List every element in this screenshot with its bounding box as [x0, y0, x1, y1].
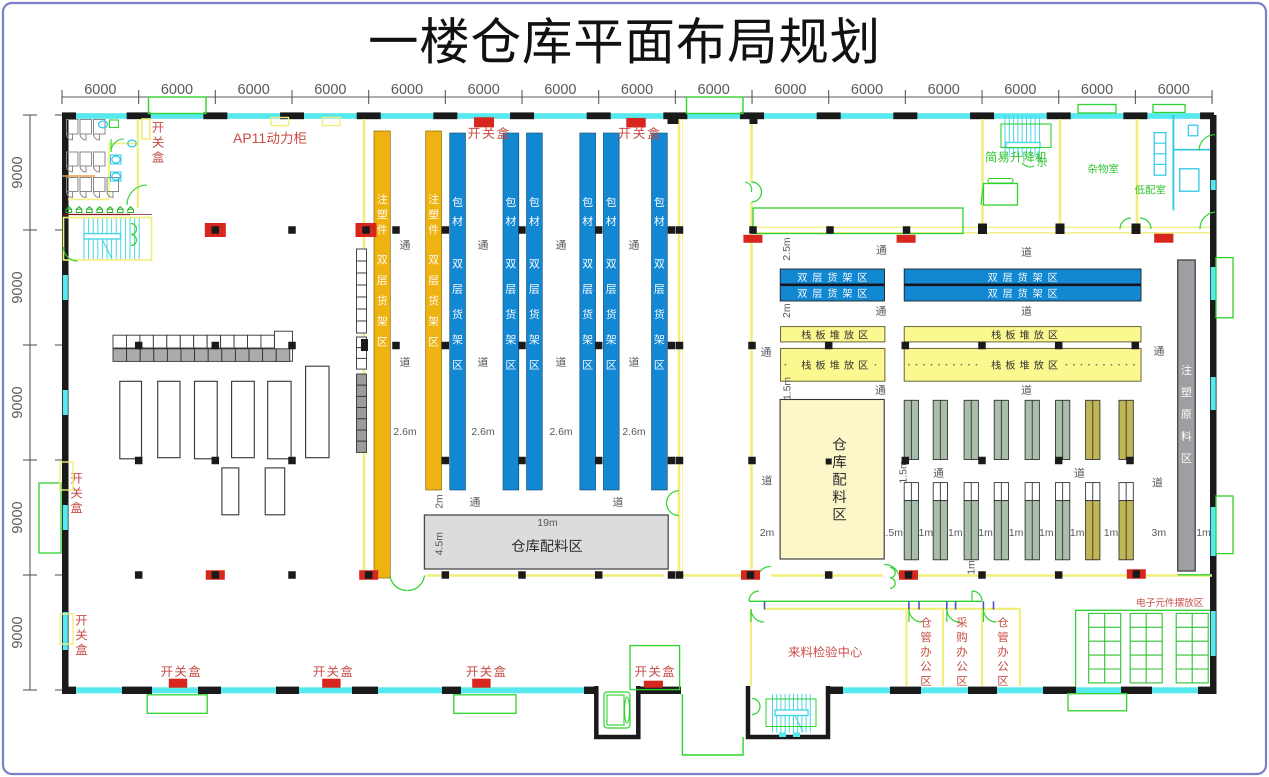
- svg-text:6000: 6000: [314, 82, 346, 98]
- svg-text:1m: 1m: [1039, 527, 1054, 539]
- svg-text:AP11: AP11: [233, 130, 266, 146]
- svg-text:6000: 6000: [621, 82, 653, 98]
- svg-text:4.5m: 4.5m: [434, 532, 446, 556]
- svg-text:6000: 6000: [1158, 82, 1190, 98]
- svg-text:6000: 6000: [928, 82, 960, 98]
- svg-text:9000: 9000: [10, 501, 26, 533]
- svg-text:2.5m: 2.5m: [781, 237, 793, 261]
- svg-text:2m: 2m: [760, 527, 775, 539]
- svg-text:1m: 1m: [1196, 527, 1211, 539]
- svg-text:6000: 6000: [391, 82, 423, 98]
- svg-text:6000: 6000: [161, 82, 193, 98]
- svg-text:1m: 1m: [948, 527, 963, 539]
- svg-text:6000: 6000: [1004, 82, 1036, 98]
- svg-text:3m: 3m: [1152, 527, 1167, 539]
- svg-text:1.5m: 1.5m: [781, 377, 793, 401]
- svg-text:6000: 6000: [1081, 82, 1113, 98]
- svg-text:2m: 2m: [781, 303, 793, 318]
- svg-text:6000: 6000: [698, 82, 730, 98]
- svg-text:9000: 9000: [10, 156, 26, 188]
- svg-text:9000: 9000: [10, 386, 26, 418]
- svg-text:1m: 1m: [978, 527, 993, 539]
- svg-text:1m: 1m: [965, 560, 977, 575]
- svg-text:1m: 1m: [1009, 527, 1024, 539]
- svg-text:6000: 6000: [774, 82, 806, 98]
- svg-text:19m: 19m: [537, 517, 558, 529]
- svg-text:2.6m: 2.6m: [549, 426, 573, 438]
- svg-text:6000: 6000: [544, 82, 576, 98]
- svg-text:9000: 9000: [10, 616, 26, 648]
- svg-text:2.6m: 2.6m: [393, 426, 417, 438]
- svg-text:1m: 1m: [919, 527, 934, 539]
- svg-text:6000: 6000: [851, 82, 883, 98]
- svg-text:2.6m: 2.6m: [622, 426, 646, 438]
- svg-text:2m: 2m: [434, 494, 446, 509]
- svg-text:9000: 9000: [10, 271, 26, 303]
- svg-text:1m: 1m: [1104, 527, 1119, 539]
- svg-text:1m: 1m: [1070, 527, 1085, 539]
- svg-text:6000: 6000: [84, 82, 116, 98]
- svg-text:6000: 6000: [468, 82, 500, 98]
- svg-text:2.6m: 2.6m: [471, 426, 495, 438]
- svg-text:6000: 6000: [238, 82, 270, 98]
